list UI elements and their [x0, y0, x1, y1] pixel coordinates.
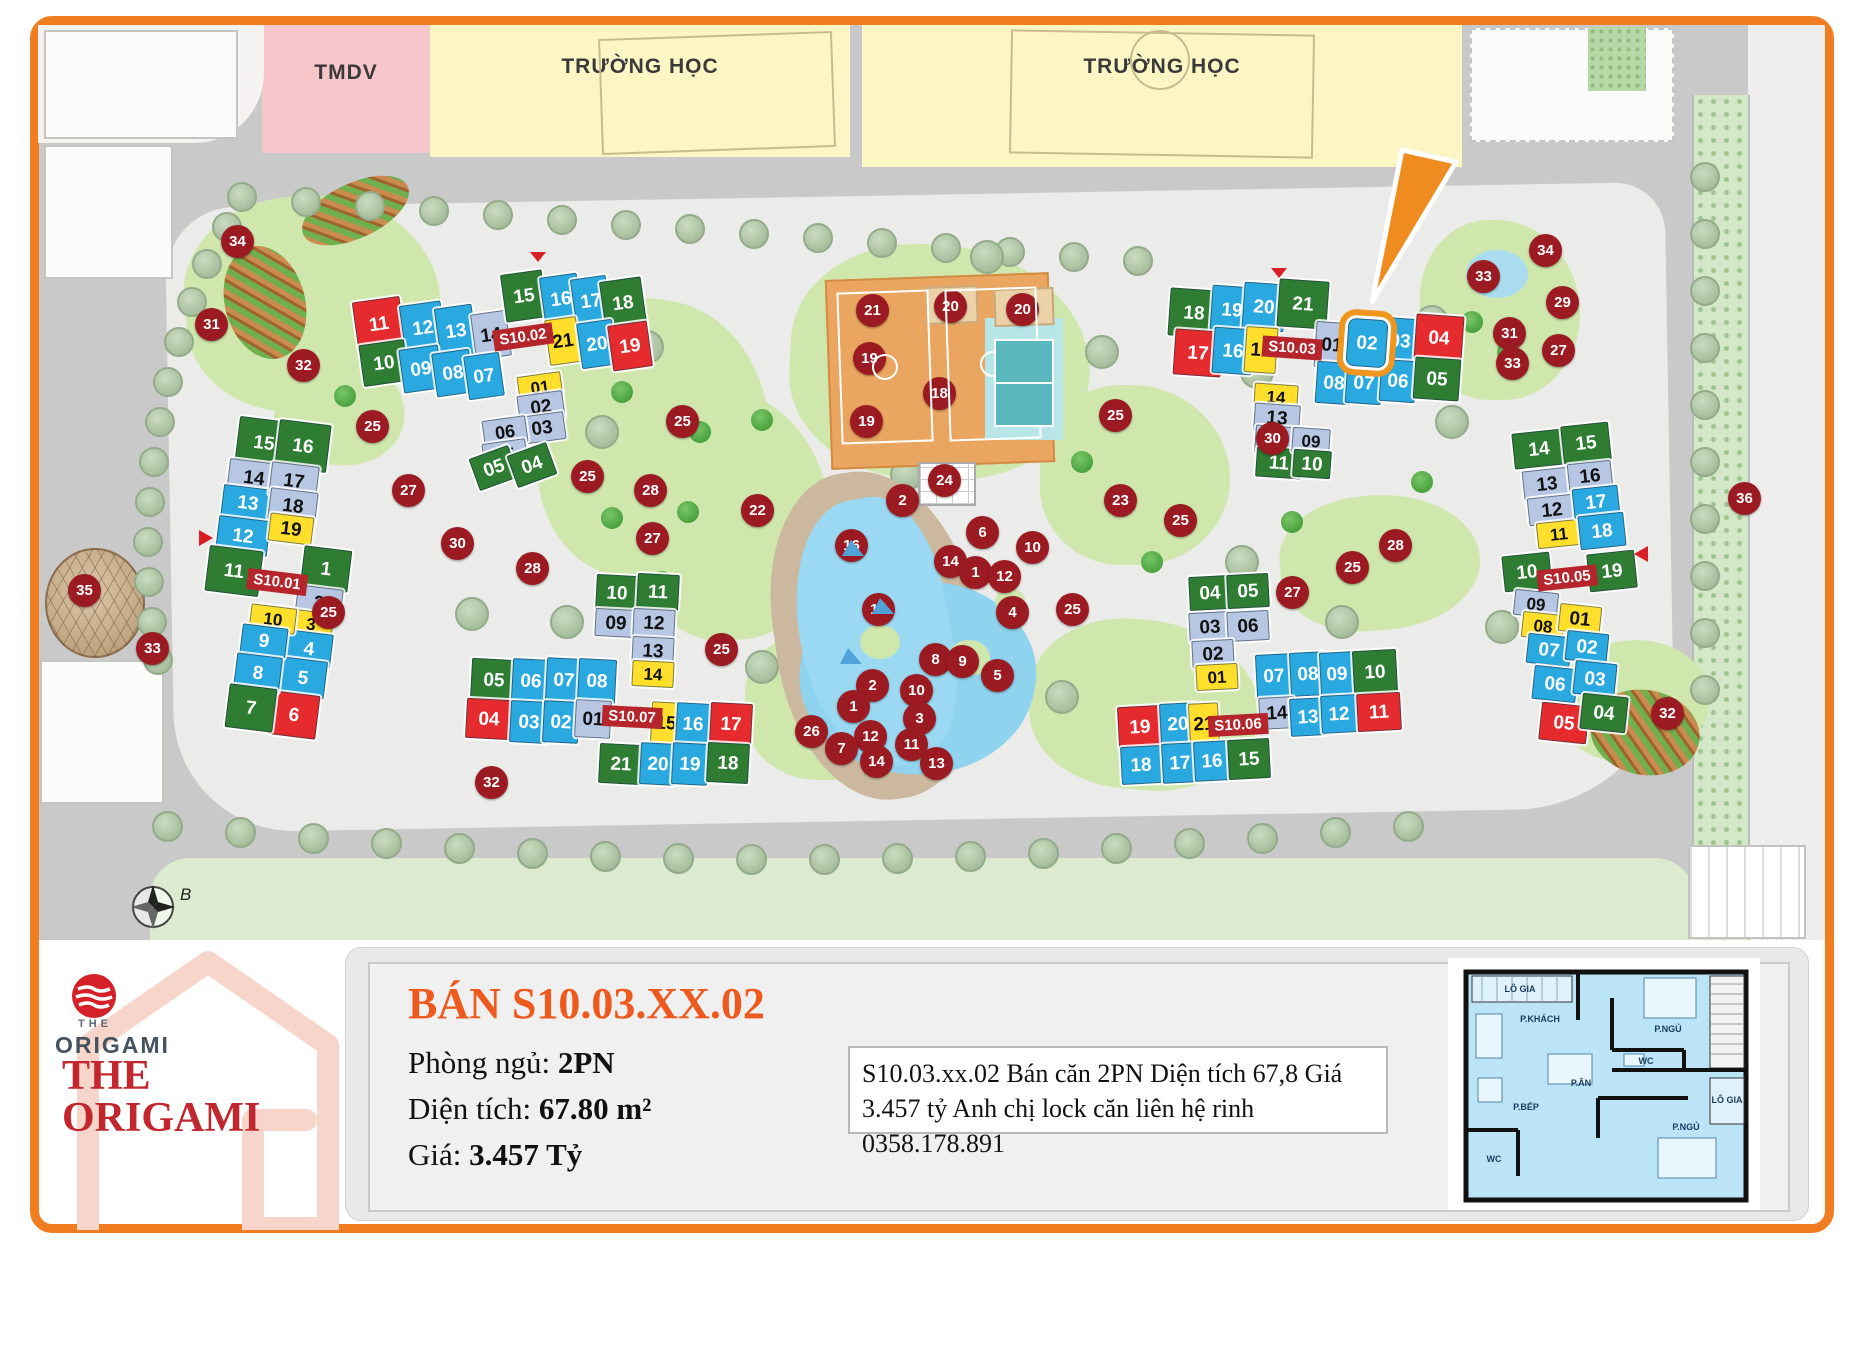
unit-s1007-11[interactable]: 11 — [636, 573, 680, 611]
unit-s1006-04[interactable]: 04 — [1188, 575, 1232, 611]
unit-s1006-01[interactable]: 01 — [1195, 663, 1238, 691]
tree — [1045, 680, 1079, 714]
unit-s1005-15[interactable]: 15 — [1560, 422, 1612, 465]
tree — [455, 597, 489, 631]
amenity-marker-5: 5 — [981, 659, 1014, 692]
unit-s1001-7[interactable]: 7 — [224, 683, 277, 733]
unit-s1005-14[interactable]: 14 — [1511, 428, 1566, 469]
green-square — [1588, 27, 1646, 91]
tree — [1059, 242, 1089, 272]
unit-s1007-08[interactable]: 08 — [577, 658, 617, 704]
tree — [371, 828, 402, 859]
tree — [1690, 447, 1720, 477]
tree — [355, 191, 385, 221]
unit-s1005-02[interactable]: 02 — [1565, 630, 1610, 664]
field-circle — [1130, 30, 1190, 90]
shrub — [1071, 451, 1093, 473]
amenity-marker-2: 2 — [886, 484, 919, 517]
logo-origami-big: ORIGAMI — [62, 1094, 260, 1142]
listing-field-1: Diện tích: 67.80 m² — [408, 1091, 651, 1127]
tree — [675, 214, 705, 244]
tree — [663, 843, 694, 874]
field-value: 2PN — [558, 1045, 615, 1080]
green-belt-south — [150, 858, 1695, 940]
tree — [550, 605, 584, 639]
amenity-marker-25: 25 — [1099, 399, 1132, 432]
tree — [1690, 561, 1720, 591]
tree — [1690, 162, 1720, 192]
amenity-marker-25: 25 — [666, 405, 699, 438]
unit-s1006-15[interactable]: 15 — [1227, 738, 1271, 780]
amenity-marker-19: 19 — [853, 342, 886, 375]
unit-s1002-19[interactable]: 19 — [607, 320, 653, 371]
unit-s1006-06[interactable]: 06 — [1226, 610, 1270, 642]
tree — [291, 187, 321, 217]
tree — [1485, 610, 1519, 644]
tree — [882, 843, 913, 874]
amenity-marker-25: 25 — [312, 596, 345, 629]
listing-title: BÁN S10.03.XX.02 — [408, 978, 765, 1029]
tree — [1690, 219, 1720, 249]
listing-note[interactable]: S10.03.xx.02 Bán căn 2PN Diện tích 67,8 … — [848, 1046, 1388, 1134]
amenity-marker-7: 7 — [825, 732, 858, 765]
amenity-marker-27: 27 — [636, 522, 669, 555]
unit-s1006-16[interactable]: 16 — [1193, 740, 1231, 782]
amenity-marker-22: 22 — [741, 494, 774, 527]
unit-s1006-11[interactable]: 11 — [1356, 692, 1402, 732]
amenity-marker-33: 33 — [1467, 260, 1500, 293]
tree — [1690, 276, 1720, 306]
unit-s1007-18[interactable]: 18 — [706, 742, 750, 784]
tree — [1690, 333, 1720, 363]
building-label-s1003: S10.03 — [1262, 335, 1323, 360]
shrub — [1141, 551, 1163, 573]
amenity-marker-35: 35 — [68, 574, 101, 607]
field-value: 67.80 m² — [539, 1091, 652, 1126]
unit-s1007-09[interactable]: 09 — [594, 608, 637, 638]
amenity-marker-4: 4 — [996, 596, 1029, 629]
shrub — [1281, 511, 1303, 533]
shrub — [677, 501, 699, 523]
amenity-marker-6: 6 — [966, 516, 999, 549]
tree — [134, 567, 164, 597]
amenity-marker-21: 21 — [856, 294, 889, 327]
unit-s1006-07[interactable]: 07 — [1255, 653, 1293, 699]
unit-s1005-06[interactable]: 06 — [1531, 665, 1578, 703]
shrub — [334, 385, 356, 407]
tree — [153, 367, 183, 397]
tree — [745, 650, 779, 684]
zone-tmdv: TMDV — [262, 25, 430, 153]
unit-s1006-10[interactable]: 10 — [1352, 649, 1398, 695]
unit-s1005-11[interactable]: 11 — [1536, 519, 1582, 549]
tree — [590, 841, 621, 872]
logo-the-big: THE — [62, 1052, 151, 1100]
tree — [1325, 605, 1359, 639]
origami-disc-icon — [70, 972, 118, 1020]
tree — [152, 811, 183, 842]
field-value: 3.457 Tỷ — [469, 1137, 582, 1172]
zone-tmdv-label: TMDV — [314, 61, 378, 85]
tree — [739, 219, 769, 249]
tree — [1247, 823, 1278, 854]
tennis-court — [985, 318, 1063, 440]
amenity-marker-27: 27 — [1276, 576, 1309, 609]
tree — [809, 844, 840, 875]
unit-s1003-04[interactable]: 04 — [1413, 313, 1464, 362]
tree — [419, 196, 449, 226]
floorplan-room-label: WC — [1487, 1154, 1502, 1164]
amenity-marker-31: 31 — [195, 308, 228, 341]
floorplan-room-label: P.ĂN — [1571, 1078, 1591, 1088]
tree — [1690, 504, 1720, 534]
tree — [1690, 390, 1720, 420]
tree — [1435, 405, 1469, 439]
listing-field-0: Phòng ngủ: 2PN — [408, 1045, 651, 1081]
unit-s1007-04[interactable]: 04 — [465, 698, 513, 740]
amenity-marker-12: 12 — [988, 560, 1021, 593]
unit-s1003-05[interactable]: 05 — [1413, 356, 1462, 401]
amenity-marker-13: 13 — [920, 747, 953, 780]
amenity-marker-24: 24 — [928, 464, 961, 497]
sports-field-outline — [598, 31, 836, 155]
amenity-marker-1: 1 — [837, 690, 870, 723]
unit-s1006-12[interactable]: 12 — [1320, 694, 1358, 734]
unit-s1006-09[interactable]: 09 — [1319, 651, 1355, 697]
floorplan-room-label: LÔ GIA — [1712, 1094, 1743, 1105]
field-label: Diện tích: — [408, 1091, 539, 1126]
tree — [145, 407, 175, 437]
tree — [931, 233, 961, 263]
amenity-marker-10: 10 — [1016, 531, 1049, 564]
unit-s1005-03[interactable]: 03 — [1572, 660, 1617, 698]
tree — [139, 447, 169, 477]
lagoon-island — [860, 625, 900, 659]
unit-s1003-10[interactable]: 10 — [1292, 449, 1332, 480]
tree — [133, 527, 163, 557]
shrub — [601, 507, 623, 529]
floorplan-room-label: P.NGỦ — [1672, 1121, 1699, 1132]
tree — [164, 327, 194, 357]
amenity-marker-15: 15 — [862, 593, 895, 626]
unit-s1002-07[interactable]: 07 — [463, 352, 505, 401]
logo-the-small: THE — [78, 1018, 112, 1030]
tree — [611, 210, 641, 240]
building-label-s1007: S10.07 — [602, 705, 663, 729]
unit-s1007-10[interactable]: 10 — [595, 574, 639, 612]
amenity-marker-27: 27 — [392, 474, 425, 507]
tree — [547, 205, 577, 235]
unit-s1007-21[interactable]: 21 — [598, 743, 644, 785]
unit-s1007-19[interactable]: 19 — [671, 742, 709, 786]
amenity-marker-26: 26 — [795, 715, 828, 748]
amenity-marker-34: 34 — [1529, 234, 1562, 267]
tree — [192, 249, 222, 279]
amenity-marker-25: 25 — [571, 460, 604, 493]
tree — [1393, 811, 1424, 842]
tree — [1174, 828, 1205, 859]
tree — [1085, 335, 1119, 369]
neighbor-block — [40, 660, 164, 804]
amenity-marker-33: 33 — [136, 632, 169, 665]
amenity-marker-25: 25 — [705, 633, 738, 666]
unit-s1003-06[interactable]: 06 — [1379, 359, 1418, 403]
amenity-marker-9: 9 — [946, 645, 979, 678]
amenity-marker-30: 30 — [1256, 422, 1289, 455]
tree — [1028, 838, 1059, 869]
amenity-marker-31: 31 — [1493, 317, 1526, 350]
floorplan-room-label: WC — [1639, 1056, 1654, 1066]
amenity-marker-28: 28 — [634, 474, 667, 507]
tree — [225, 817, 256, 848]
tree — [970, 240, 1004, 274]
amenity-marker-32: 32 — [287, 349, 320, 382]
unit-s1006-05[interactable]: 05 — [1226, 573, 1270, 609]
amenity-marker-19: 19 — [850, 405, 883, 438]
tree — [444, 833, 475, 864]
floorplan-room-label: LÔ GIA — [1505, 983, 1536, 994]
amenity-marker-33: 33 — [1496, 347, 1529, 380]
floorplan-room-label: P.KHÁCH — [1520, 1014, 1560, 1024]
neighbor-block — [44, 145, 173, 279]
shrub — [1461, 311, 1483, 333]
amenity-marker-25: 25 — [1164, 504, 1197, 537]
amenity-marker-32: 32 — [475, 766, 508, 799]
tree — [517, 838, 548, 869]
amenity-marker-14: 14 — [860, 745, 893, 778]
floorplan-room-label: P.NGỦ — [1654, 1023, 1681, 1034]
unit-s1001-19[interactable]: 19 — [267, 512, 314, 545]
shrub — [751, 409, 773, 431]
unit-s1005-04[interactable]: 04 — [1579, 693, 1629, 734]
unit-s1006-18[interactable]: 18 — [1120, 745, 1162, 785]
building-label-s1006: S10.06 — [1208, 713, 1269, 737]
amenity-marker-1: 1 — [959, 556, 992, 589]
tree — [135, 487, 165, 517]
tree — [227, 182, 257, 212]
amenity-marker-16: 16 — [835, 529, 868, 562]
tree — [1101, 833, 1132, 864]
amenity-marker-20: 20 — [1006, 293, 1039, 326]
amenity-marker-28: 28 — [516, 552, 549, 585]
tree — [1690, 618, 1720, 648]
amenity-marker-18: 18 — [923, 377, 956, 410]
floorplan-drawing: LÔ GIAP.KHÁCHP.NGỦWCP.ĂNP.BẾPWCLÔ GIAP.N… — [1448, 958, 1760, 1210]
floorplan-thumbnail[interactable]: LÔ GIAP.KHÁCHP.NGỦWCP.ĂNP.BẾPWCLÔ GIAP.N… — [1448, 958, 1760, 1210]
amenity-marker-20: 20 — [934, 290, 967, 323]
unit-s1003-02[interactable]: 02 — [1345, 318, 1388, 369]
amenity-marker-29: 29 — [1546, 286, 1579, 319]
amenity-marker-34: 34 — [221, 225, 254, 258]
page: TMDV TRƯỜNG HỌC TRƯỜNG HỌC — [0, 0, 1864, 1366]
tree — [736, 844, 767, 875]
amenity-marker-25: 25 — [1336, 551, 1369, 584]
shrub — [1411, 471, 1433, 493]
field-label: Phòng ngủ: — [408, 1045, 558, 1080]
tree — [1690, 675, 1720, 705]
listing-fields: Phòng ngủ: 2PNDiện tích: 67.80 m²Giá: 3.… — [408, 1045, 651, 1183]
amenity-marker-32: 32 — [1651, 697, 1684, 730]
amenity-marker-30: 30 — [441, 527, 474, 560]
floorplan-room-label: P.BẾP — [1513, 1102, 1539, 1112]
amenity-marker-25: 25 — [356, 410, 389, 443]
unit-s1007-12[interactable]: 12 — [632, 608, 675, 638]
unit-s1005-18[interactable]: 18 — [1577, 512, 1626, 551]
amenity-marker-27: 27 — [1542, 334, 1575, 367]
tree — [585, 415, 619, 449]
unit-s1007-17[interactable]: 17 — [709, 702, 753, 746]
east-road — [1748, 25, 1825, 940]
unit-s1007-16[interactable]: 16 — [675, 702, 711, 746]
amenity-marker-17: 17 — [1006, 387, 1039, 420]
tree — [1320, 817, 1351, 848]
amenity-marker-36: 36 — [1728, 482, 1761, 515]
amenity-marker-25: 25 — [1056, 593, 1089, 626]
unit-s1006-19[interactable]: 19 — [1117, 705, 1163, 749]
shrub — [611, 381, 633, 403]
neighbor-block — [44, 30, 238, 139]
unit-s1006-03[interactable]: 03 — [1188, 611, 1232, 643]
unit-s1007-14[interactable]: 14 — [631, 660, 674, 688]
field-label: Giá: — [408, 1137, 469, 1172]
listing-field-2: Giá: 3.457 Tỷ — [408, 1137, 651, 1173]
tree — [955, 841, 986, 872]
tree — [298, 823, 329, 854]
tree — [867, 228, 897, 258]
parking-structure — [1688, 845, 1806, 939]
amenity-marker-23: 23 — [1104, 484, 1137, 517]
amenity-marker-28: 28 — [1379, 529, 1412, 562]
